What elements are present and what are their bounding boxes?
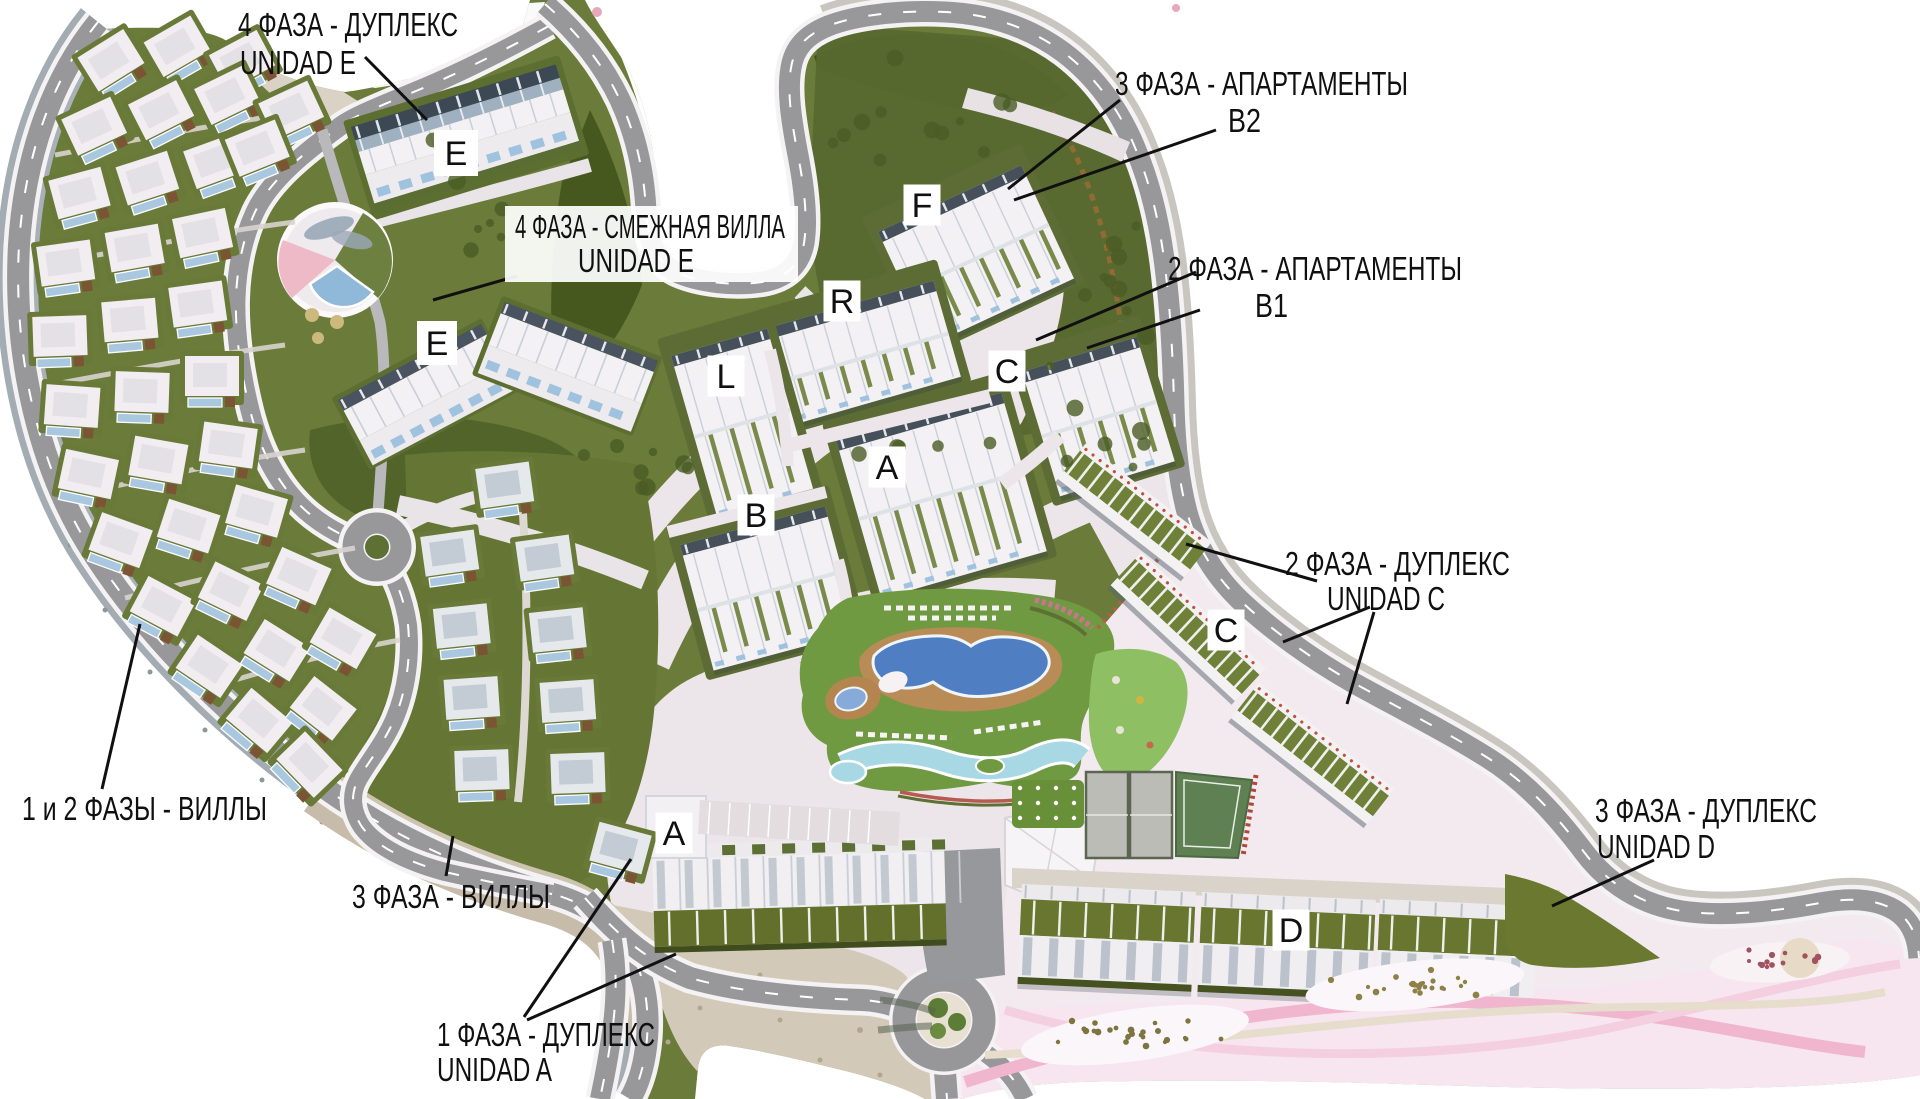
svg-text:UNIDAD E: UNIDAD E [578, 242, 694, 279]
svg-text:3 ФАЗА - ВИЛЛЫ: 3 ФАЗА - ВИЛЛЫ [352, 878, 550, 915]
svg-text:2 ФАЗА - ДУПЛЕКС: 2 ФАЗА - ДУПЛЕКС [1285, 545, 1510, 582]
svg-text:L: L [717, 358, 736, 396]
svg-text:2 ФАЗА - АПАРТАМЕНТЫ: 2 ФАЗА - АПАРТАМЕНТЫ [1168, 250, 1462, 287]
svg-text:E: E [445, 135, 468, 173]
svg-text:C: C [995, 353, 1020, 391]
svg-text:F: F [912, 187, 933, 225]
svg-text:D: D [1279, 912, 1304, 950]
svg-text:A: A [876, 449, 899, 487]
svg-text:E: E [426, 325, 449, 363]
svg-text:UNIDAD E: UNIDAD E [240, 44, 356, 81]
svg-text:UNIDAD D: UNIDAD D [1597, 828, 1715, 865]
svg-text:3 ФАЗА - ДУПЛЕКС: 3 ФАЗА - ДУПЛЕКС [1595, 792, 1817, 829]
svg-text:4 ФАЗА - СМЕЖНАЯ ВИЛЛА: 4 ФАЗА - СМЕЖНАЯ ВИЛЛА [515, 208, 785, 245]
svg-text:В1: В1 [1255, 287, 1288, 324]
svg-text:UNIDAD A: UNIDAD A [437, 1051, 552, 1088]
svg-text:3 ФАЗА - АПАРТАМЕНТЫ: 3 ФАЗА - АПАРТАМЕНТЫ [1115, 65, 1408, 102]
svg-text:1 ФАЗА - ДУПЛЕКС: 1 ФАЗА - ДУПЛЕКС [437, 1016, 655, 1053]
svg-text:UNIDAD C: UNIDAD C [1327, 580, 1445, 617]
svg-text:R: R [830, 283, 855, 321]
svg-text:4 ФАЗА - ДУПЛЕКС: 4 ФАЗА - ДУПЛЕКС [238, 6, 458, 43]
svg-text:B: B [745, 497, 768, 535]
svg-text:C: C [1214, 612, 1239, 650]
svg-text:В2: В2 [1228, 102, 1261, 139]
svg-text:1 и 2 ФАЗЫ - ВИЛЛЫ: 1 и 2 ФАЗЫ - ВИЛЛЫ [22, 790, 267, 827]
svg-text:A: A [663, 815, 686, 853]
